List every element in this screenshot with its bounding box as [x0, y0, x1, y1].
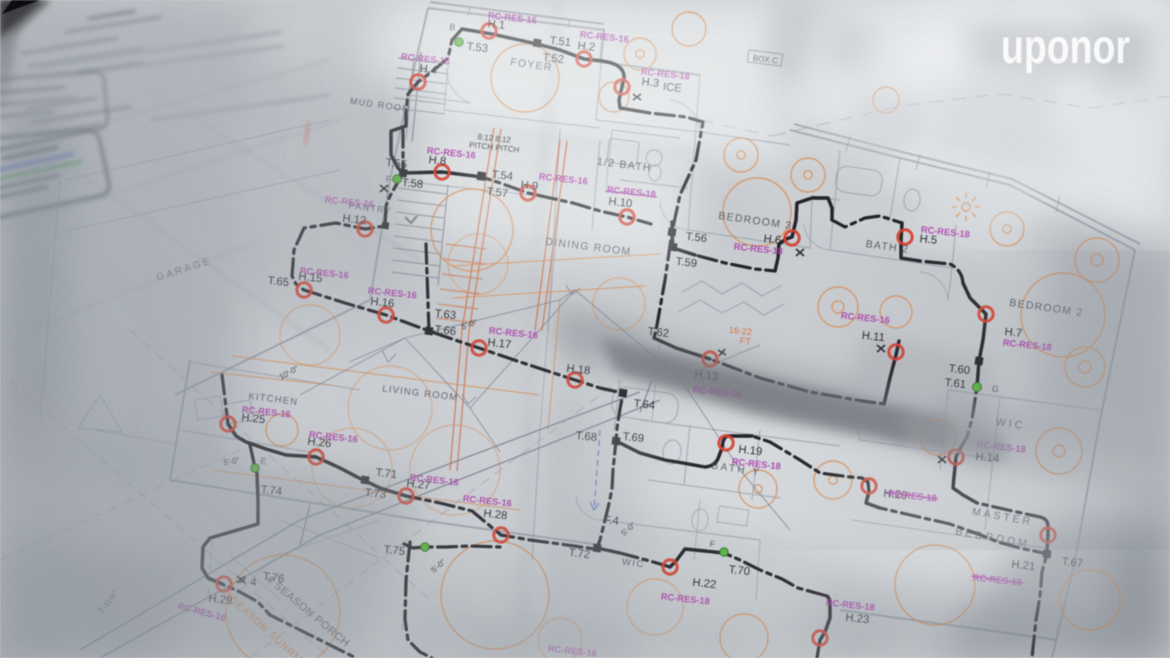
- svg-text:uponor: uponor: [1001, 21, 1130, 75]
